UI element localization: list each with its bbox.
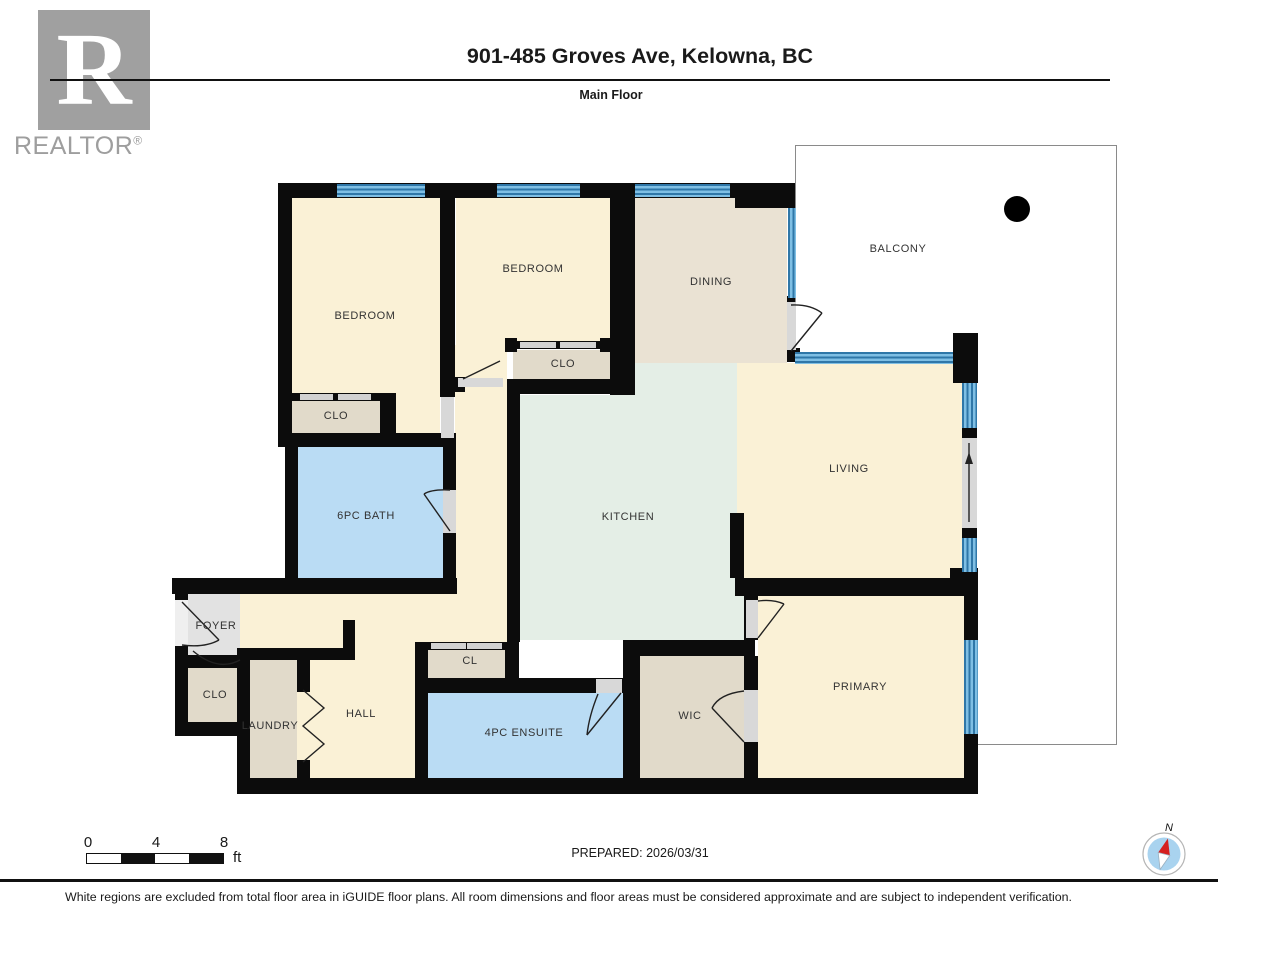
room-label-ensuite: 4PC ENSUITE (485, 727, 564, 739)
door-arc (758, 600, 784, 604)
room-label-clo2: CLO (551, 358, 575, 370)
door-arc (712, 691, 744, 708)
door-arc (193, 651, 240, 664)
room-label-cl: CL (462, 655, 477, 667)
room-label-dining: DINING (690, 276, 732, 288)
door-leaf (587, 693, 621, 735)
door-leaf (758, 604, 784, 638)
room-label-foyer: FOYER (196, 620, 237, 632)
door-leaf (791, 313, 822, 351)
compass-icon: N (1139, 820, 1191, 878)
room-label-bath: 6PC BATH (337, 510, 395, 522)
room-label-living: LIVING (829, 463, 869, 475)
compass-north-label: N (1165, 822, 1173, 834)
room-label-clo3: CLO (203, 689, 227, 701)
slider-arrow-icon (965, 452, 973, 464)
room-label-primary: PRIMARY (833, 681, 887, 693)
room-label-balcony: BALCONY (870, 243, 927, 255)
floor-plan-page: R REALTOR® 901-485 Groves Ave, Kelowna, … (0, 0, 1280, 960)
room-label-laundry: LAUNDRY (242, 720, 299, 732)
door-leaf (424, 494, 450, 531)
door-swings-overlay (0, 0, 1280, 960)
door-leaf (463, 361, 500, 379)
room-label-kitchen: KITCHEN (602, 511, 654, 523)
room-label-wic: WIC (678, 710, 701, 722)
room-label-clo1: CLO (324, 410, 348, 422)
bifold-door (303, 690, 324, 762)
door-arc (182, 640, 219, 646)
room-label-hall: HALL (346, 708, 376, 720)
door-arc (791, 305, 822, 313)
door-arc (424, 490, 450, 494)
footer-divider (0, 879, 1218, 882)
room-label-bedroom2: BEDROOM (502, 263, 563, 275)
door-leaf (712, 708, 744, 742)
room-label-bedroom1: BEDROOM (334, 310, 395, 322)
prepared-date: PREPARED: 2026/03/31 (0, 846, 1280, 860)
disclaimer-text: White regions are excluded from total fl… (65, 890, 1215, 904)
